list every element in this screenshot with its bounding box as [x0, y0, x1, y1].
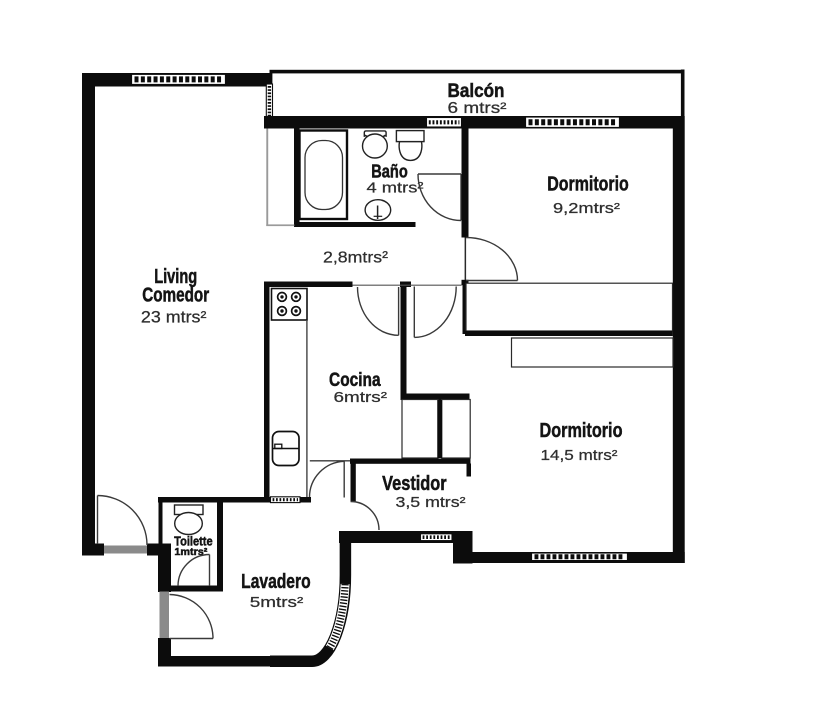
svg-text:2,8mtrs²: 2,8mtrs² — [323, 250, 389, 267]
svg-text:Comedor: Comedor — [142, 285, 209, 307]
svg-text:6 mtrs²: 6 mtrs² — [448, 100, 507, 117]
svg-text:Lavadero: Lavadero — [241, 571, 311, 593]
svg-text:Baño: Baño — [371, 161, 408, 181]
svg-text:Dormitorio: Dormitorio — [540, 420, 623, 442]
svg-text:6mtrs²: 6mtrs² — [334, 390, 388, 406]
svg-text:23 mtrs²: 23 mtrs² — [141, 309, 207, 327]
svg-text:9,2mtrs²: 9,2mtrs² — [553, 201, 620, 217]
svg-text:3,5 mtrs²: 3,5 mtrs² — [396, 495, 466, 511]
svg-text:4 mtrs²: 4 mtrs² — [367, 180, 424, 197]
svg-text:Dormitorio: Dormitorio — [547, 173, 629, 195]
svg-text:Cocina: Cocina — [329, 370, 381, 391]
svg-text:Vestidor: Vestidor — [382, 473, 447, 495]
svg-text:1mtrs²: 1mtrs² — [174, 546, 208, 558]
svg-text:5mtrs²: 5mtrs² — [250, 595, 304, 611]
svg-text:14,5 mtrs²: 14,5 mtrs² — [541, 448, 618, 464]
